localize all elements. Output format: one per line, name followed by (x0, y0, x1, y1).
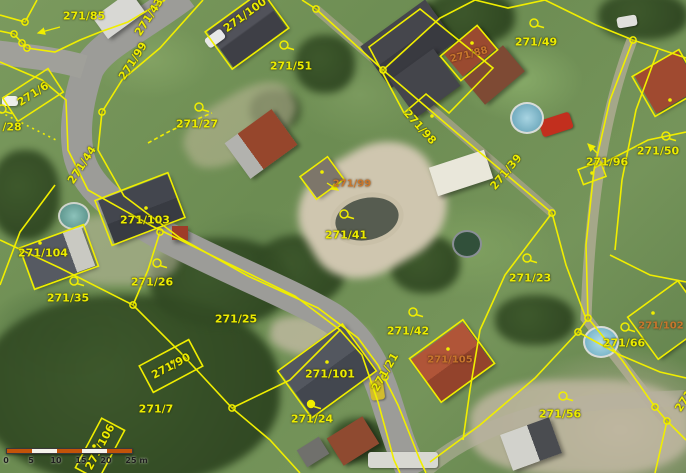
parcel-label: 271/101 (305, 369, 355, 380)
cadastral-map-canvas[interactable]: 271/85271/43271/99271/100271/51271/49271… (0, 0, 686, 473)
parcel-label: 271/23 (509, 273, 551, 284)
parcel-label: /28 (2, 122, 21, 133)
scalebar-tick-label: 20 (100, 456, 111, 465)
parcel-label: 271/51 (270, 61, 312, 72)
parcel-label: 271/99 (333, 179, 371, 190)
scalebar-tick-label: 10 (50, 456, 61, 465)
scalebar-tick-label: 5 (28, 456, 34, 465)
parcel-label-layer: 271/85271/43271/99271/100271/51271/49271… (0, 0, 686, 473)
parcel-label: 271/35 (47, 293, 89, 304)
parcel-label: 271/105 (427, 355, 472, 366)
parcel-label: 271/44 (66, 144, 98, 185)
scalebar: 0510152025 m (6, 448, 176, 470)
scalebar-segment (7, 449, 32, 453)
parcel-label: 271/41 (325, 230, 367, 241)
parcel-label: 271/25 (215, 314, 257, 325)
scalebar-tick-label: 0 (3, 456, 9, 465)
parcel-label: 271/21 (370, 351, 401, 393)
scalebar-segment (82, 449, 107, 453)
parcel-label: 271/98 (402, 108, 438, 147)
parcel-label: 271/85 (63, 11, 105, 22)
parcel-label: 271/50 (637, 146, 679, 157)
scalebar-tick-label: 25 m (125, 456, 147, 465)
parcel-label: 271/99 (117, 40, 149, 81)
parcel-label: 271/27 (176, 119, 218, 130)
parcel-label: 271/100 (222, 0, 269, 34)
scalebar-segment (107, 449, 132, 453)
parcel-label: 271/26 (131, 277, 173, 288)
parcel-label: 271/96 (586, 157, 628, 168)
parcel-label: 271/7 (139, 404, 174, 415)
parcel-label: 271 (673, 388, 686, 413)
scalebar-tick-label: 15 (75, 456, 86, 465)
parcel-label: 271/88 (449, 45, 489, 65)
scalebar-segment (57, 449, 82, 453)
scalebar-bar (6, 448, 133, 454)
parcel-label: 271/102 (638, 321, 683, 332)
parcel-label: 271/66 (603, 338, 645, 349)
parcel-label: 271/43 (133, 0, 165, 38)
scalebar-segment (32, 449, 57, 453)
parcel-label: 271/104 (18, 248, 68, 259)
parcel-label: 271/6 (15, 80, 50, 108)
parcel-label: 271/56 (539, 409, 581, 420)
parcel-label: 271/90 (150, 351, 193, 381)
parcel-label: 271/39 (488, 152, 524, 191)
parcel-label: 271/42 (387, 326, 429, 337)
parcel-label: 271/49 (515, 37, 557, 48)
parcel-label: 271/24 (291, 414, 333, 425)
parcel-label: 271/103 (120, 215, 170, 226)
